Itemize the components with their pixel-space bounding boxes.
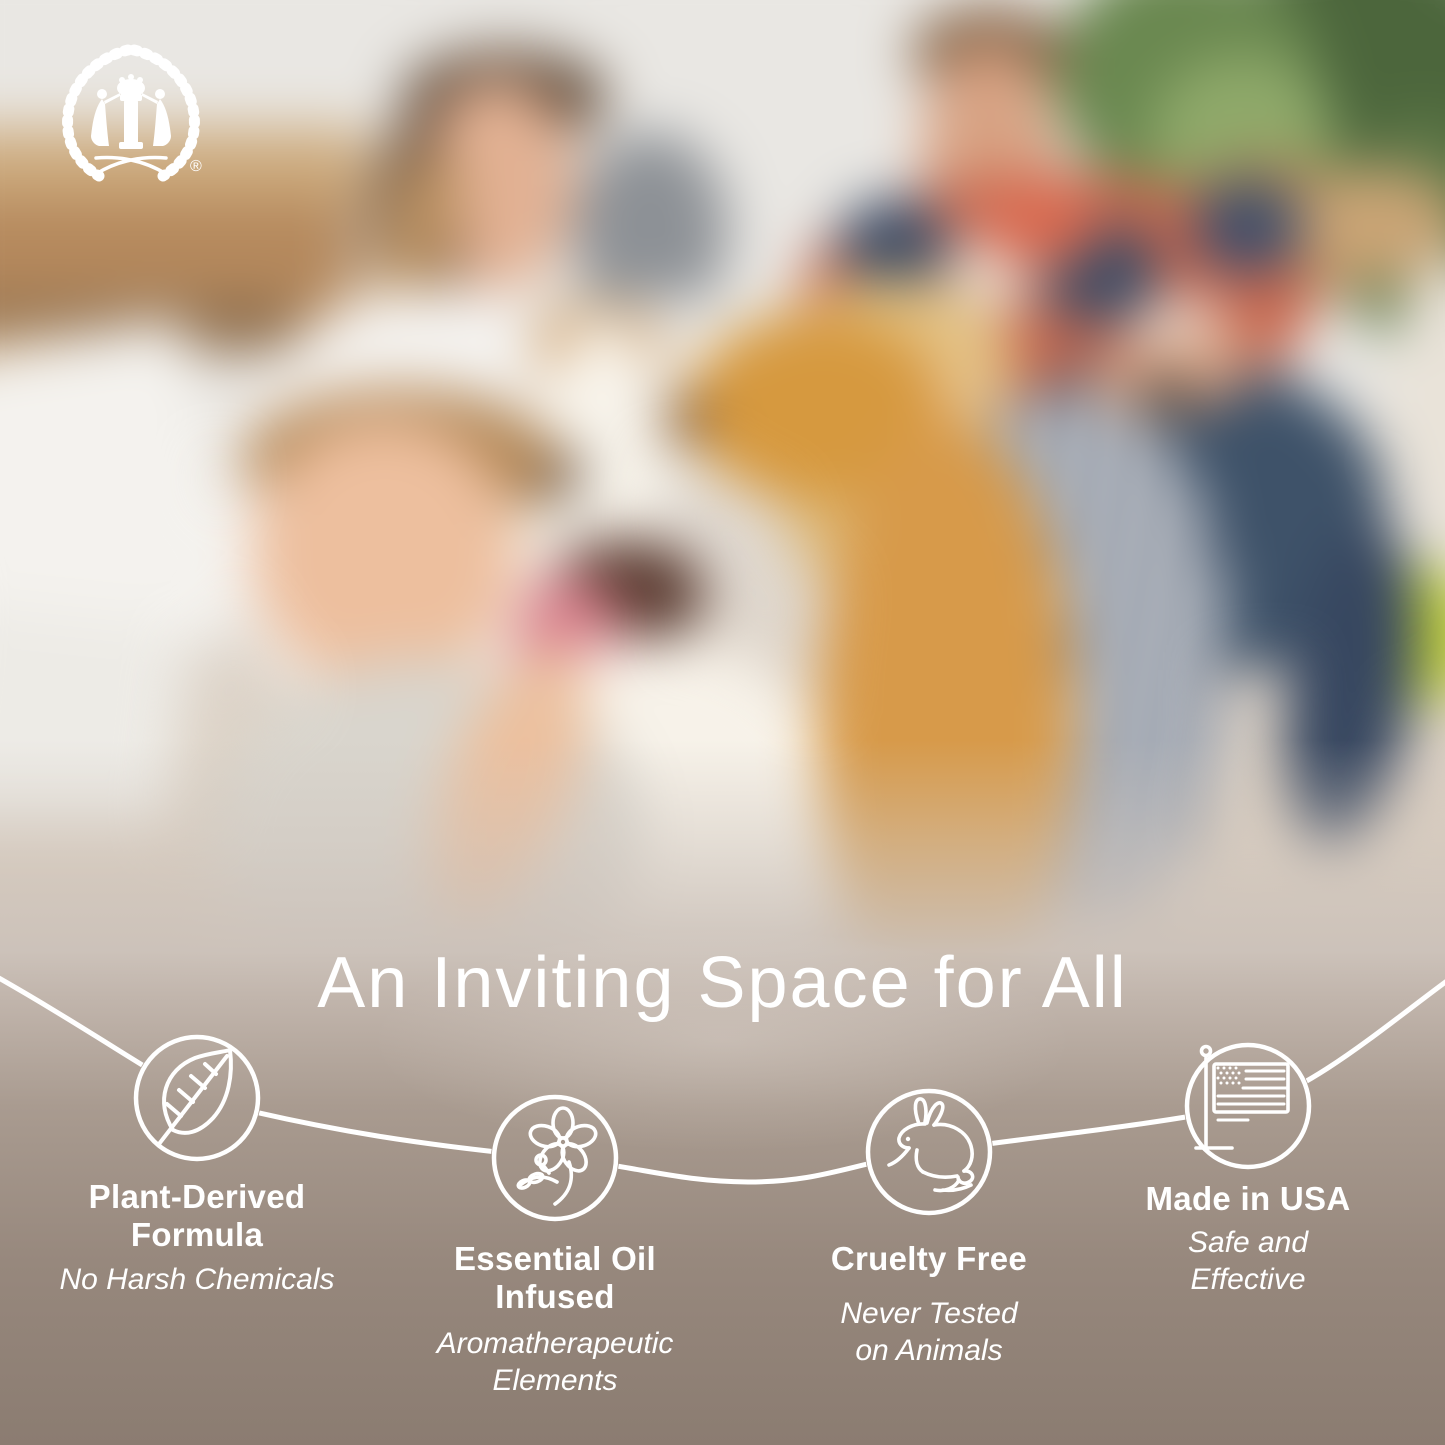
usa-flag-icon (1196, 1047, 1288, 1149)
leaf-icon (159, 1050, 231, 1144)
feature-subtitle: Aromatherapeutic Elements (365, 1325, 745, 1399)
feature-plant-derived: Plant-Derived Formula No Harsh Chemicals (7, 1178, 387, 1298)
rabbit-icon (889, 1099, 973, 1191)
feature-made-in-usa: Made in USA Safe and Effective (1058, 1180, 1438, 1298)
feature-title: Made in USA (1058, 1180, 1438, 1218)
feature-subtitle: Safe and Effective (1058, 1224, 1438, 1298)
feature-title: Plant-Derived Formula (7, 1178, 387, 1254)
flag-stars (1217, 1067, 1241, 1085)
marketing-image: ® An Inviting Space for All (0, 0, 1445, 1445)
connector-wave-line (0, 973, 1445, 1182)
feature-subtitle: No Harsh Chemicals (7, 1261, 387, 1298)
feature-essential-oil: Essential Oil Infused Aromatherapeutic E… (365, 1240, 745, 1399)
feature-title: Essential Oil Infused (365, 1240, 745, 1316)
feature-subtitle: Never Tested on Animals (739, 1295, 1119, 1369)
